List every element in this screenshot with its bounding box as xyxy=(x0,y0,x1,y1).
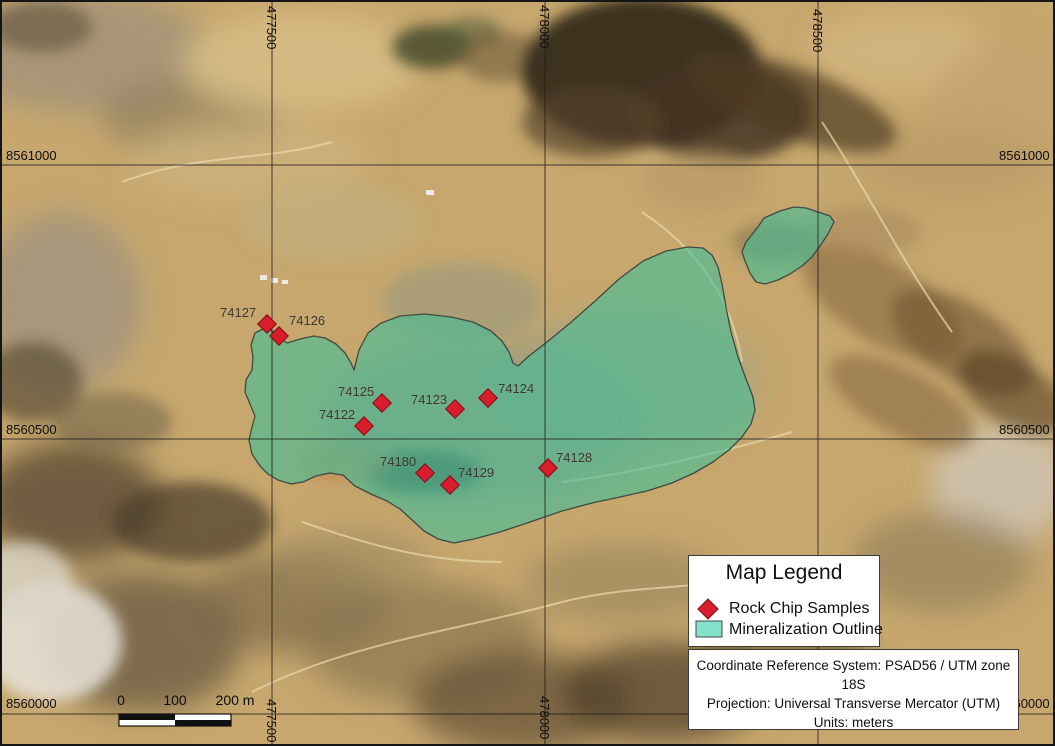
sample-label-74129: 74129 xyxy=(458,465,494,480)
sample-label-74122: 74122 xyxy=(319,407,355,422)
northing-label-right-8560500: 8560500 xyxy=(999,422,1050,437)
map-figure: 477500 478000 478500 477500 478000 85610… xyxy=(0,0,1055,746)
crs-info-box: Coordinate Reference System: PSAD56 / UT… xyxy=(688,649,1019,730)
sample-label-74123: 74123 xyxy=(411,392,447,407)
easting-label-top-478500: 478500 xyxy=(810,9,825,52)
northing-label-left-8561000: 8561000 xyxy=(6,148,57,163)
crs-line-2: Projection: Universal Transverse Mercato… xyxy=(689,694,1018,713)
legend-label-mineralization-outline: Mineralization Outline xyxy=(729,621,883,639)
easting-label-top-477500: 477500 xyxy=(264,6,279,49)
mineralization-swatch-icon xyxy=(695,620,723,638)
crs-line-1: Coordinate Reference System: PSAD56 / UT… xyxy=(689,656,1018,694)
sample-label-74128: 74128 xyxy=(556,450,592,465)
sample-label-74124: 74124 xyxy=(498,381,534,396)
easting-label-top-478000: 478000 xyxy=(537,5,552,48)
map-canvas xyxy=(2,2,1055,746)
scale-tick-0: 0 xyxy=(117,692,125,708)
sample-label-74126: 74126 xyxy=(289,313,325,328)
northing-label-left-8560000: 8560000 xyxy=(6,696,57,711)
scale-bar xyxy=(119,714,231,726)
legend-title: Map Legend xyxy=(689,561,879,585)
northing-label-left-8560500: 8560500 xyxy=(6,422,57,437)
sample-label-74180: 74180 xyxy=(380,454,416,469)
scale-tick-200m: 200 m xyxy=(216,692,255,708)
northing-label-right-8561000: 8561000 xyxy=(999,148,1050,163)
scale-tick-100: 100 xyxy=(163,692,186,708)
easting-label-bottom-477500: 477500 xyxy=(264,699,279,742)
easting-label-bottom-478000: 478000 xyxy=(537,696,552,739)
red-diamond-icon xyxy=(696,597,720,621)
crs-line-3: Units: meters xyxy=(689,713,1018,732)
legend-label-rock-chip-samples: Rock Chip Samples xyxy=(729,600,870,618)
sample-label-74127: 74127 xyxy=(220,305,256,320)
sample-label-74125: 74125 xyxy=(338,384,374,399)
